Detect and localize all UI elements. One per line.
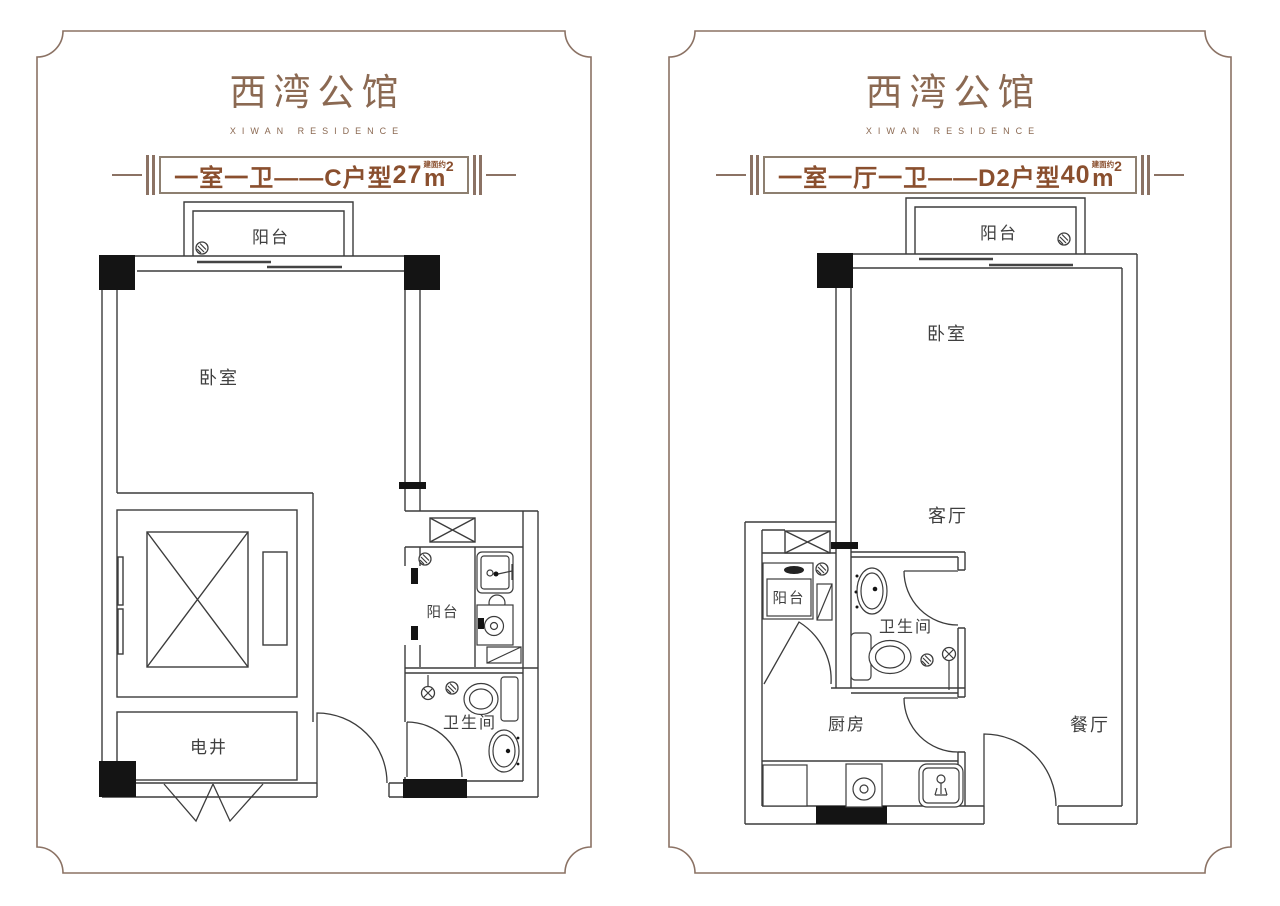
wall-strip [118,557,123,605]
structural-columns [99,255,467,798]
room-label-dining: 餐厅 [1070,715,1110,735]
elevator-door-panel [263,552,287,645]
kitchen-cabinet [763,765,807,806]
bath-drain-icon [446,682,458,694]
balcony-drain-icon [1058,233,1070,245]
floor-plan-d2-labels: 阳台 卧室 客厅 阳台 卫生间 厨房 餐厅 [773,224,1111,735]
floor-drain-icon [422,687,435,700]
toilet-tank [851,633,871,680]
room-label-balcony-top: 阳台 [980,224,1018,243]
room-label-living: 客厅 [928,506,968,526]
floor-drain-icon [943,648,956,661]
double-swing-doors [164,784,263,821]
kitchen-door [904,698,958,752]
room-label-kitchen: 厨房 [828,715,866,734]
elevator-shaft [117,510,297,697]
sliding-door [197,262,342,267]
room-label-bedroom: 卧室 [927,324,967,344]
entry-door [984,734,1056,806]
room-label-balcony-side: 阳台 [773,590,806,607]
room-label-bathroom: 卫生间 [879,618,933,636]
balcony-drain-icon [419,553,431,565]
floor-plans-drawing: 阳台 卧室 电井 阳台 卫生间 [0,0,1280,906]
room-label-bathroom: 卫生间 [443,714,497,732]
entry-door [317,713,387,783]
bath-drain-icon [921,654,933,666]
balcony-drain-icon [196,242,208,254]
room-label-utility-shaft: 电井 [190,738,228,757]
threshold [487,647,521,663]
room-label-balcony-top: 阳台 [252,228,290,247]
room-label-bedroom: 卧室 [199,368,239,388]
bathroom-door [904,571,958,625]
room-label-balcony-side: 阳台 [427,604,460,621]
elevator-cross [147,532,248,667]
balcony-door [764,622,831,684]
balcony-drain-icon [816,563,828,575]
toilet-tank [501,677,518,721]
wall-strip [118,609,123,654]
sliding-door [919,259,1073,265]
